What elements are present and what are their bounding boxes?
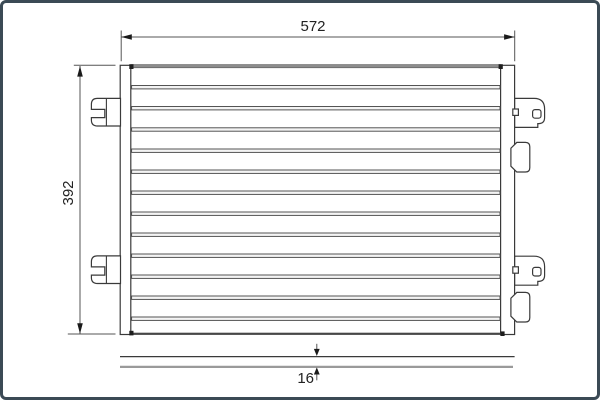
tube-row: [132, 317, 500, 320]
condenser-front-view: [91, 64, 544, 336]
left-tank: [120, 65, 131, 334]
drawing-frame: 572 392 16: [0, 0, 600, 400]
core-corner-dot: [129, 331, 133, 336]
arrow-down-icon: [314, 349, 320, 356]
condenser-drawing-svg: [3, 3, 597, 397]
tube-row: [132, 233, 500, 236]
depth-dimension: [314, 344, 320, 381]
arrow-up-icon: [314, 367, 320, 374]
tube-row: [132, 212, 500, 215]
core-bottom-edge: [131, 333, 500, 335]
side-view: [120, 357, 515, 367]
bracket-lower-left: [91, 256, 120, 284]
height-dimension-label: 392: [61, 163, 79, 223]
bracket-notch: [513, 109, 519, 115]
tube-row: [132, 170, 500, 173]
tube-row: [132, 254, 500, 257]
right-tank: [501, 65, 515, 334]
bracket-hole: [533, 110, 541, 119]
arrow-down-icon: [77, 323, 83, 334]
core-tubes: [132, 86, 500, 321]
bracket-hole: [533, 267, 541, 276]
arrow-left-icon: [121, 34, 132, 40]
arrow-up-icon: [77, 66, 83, 77]
fitting-upper-right: [511, 142, 530, 172]
tube-row: [132, 275, 500, 278]
bracket-lower-right: [513, 256, 545, 285]
depth-dimension-label: 16: [284, 371, 314, 387]
core-corner-dot: [500, 331, 504, 336]
tube-row: [132, 296, 500, 299]
tube-row: [132, 149, 500, 152]
arrow-right-icon: [504, 34, 515, 40]
tube-row: [132, 128, 500, 131]
bracket-upper-right: [513, 98, 545, 127]
bracket-notch: [513, 267, 519, 273]
tube-row: [132, 107, 500, 110]
width-dimension: [121, 31, 515, 62]
tube-row: [132, 191, 500, 194]
width-dimension-label: 572: [273, 19, 353, 35]
bracket-upper-left: [91, 98, 120, 126]
core-top-edge: [131, 65, 500, 68]
fitting-lower-right: [511, 292, 530, 322]
core-corner-dot: [499, 64, 503, 69]
core-corner-dot: [129, 64, 133, 69]
tube-row: [132, 86, 500, 89]
